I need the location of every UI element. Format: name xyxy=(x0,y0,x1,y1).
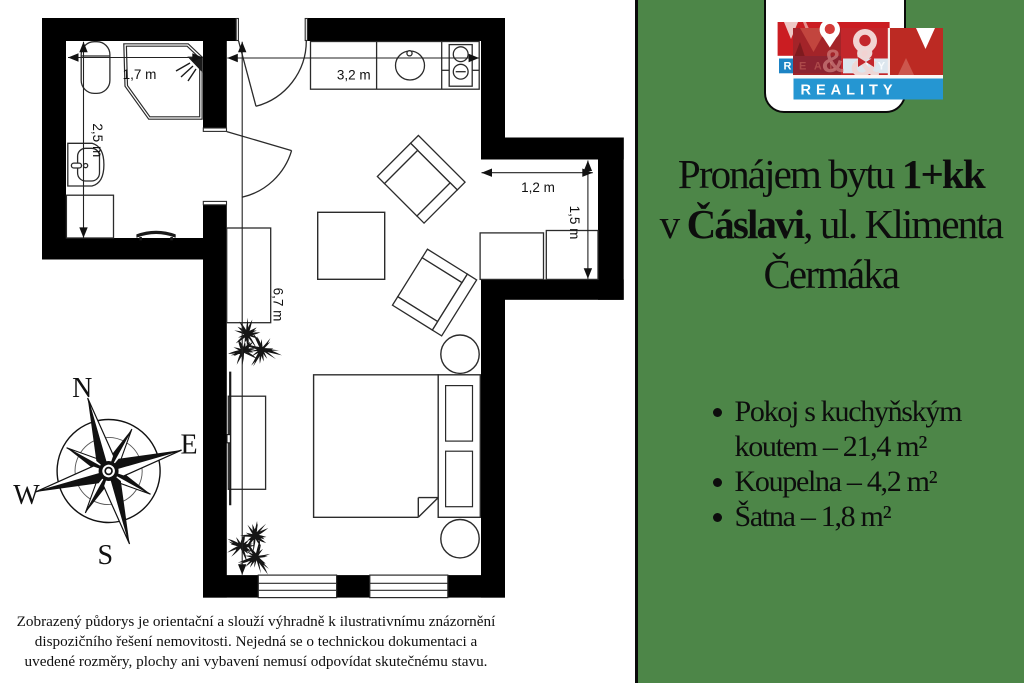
svg-text:1,7 m: 1,7 m xyxy=(123,67,157,82)
svg-text:E: E xyxy=(180,430,197,461)
svg-text:S: S xyxy=(98,540,114,571)
svg-text:2,5 m: 2,5 m xyxy=(90,123,105,157)
svg-text:&: & xyxy=(821,43,844,79)
svg-text:REALITY: REALITY xyxy=(801,83,898,99)
svg-text:3,2 m: 3,2 m xyxy=(337,68,371,83)
svg-text:1,2 m: 1,2 m xyxy=(521,180,555,195)
svg-text:N: N xyxy=(72,373,92,404)
svg-text:W: W xyxy=(13,480,40,511)
svg-text:1,5 m: 1,5 m xyxy=(567,206,582,240)
svg-text:6,7 m: 6,7 m xyxy=(270,288,285,322)
